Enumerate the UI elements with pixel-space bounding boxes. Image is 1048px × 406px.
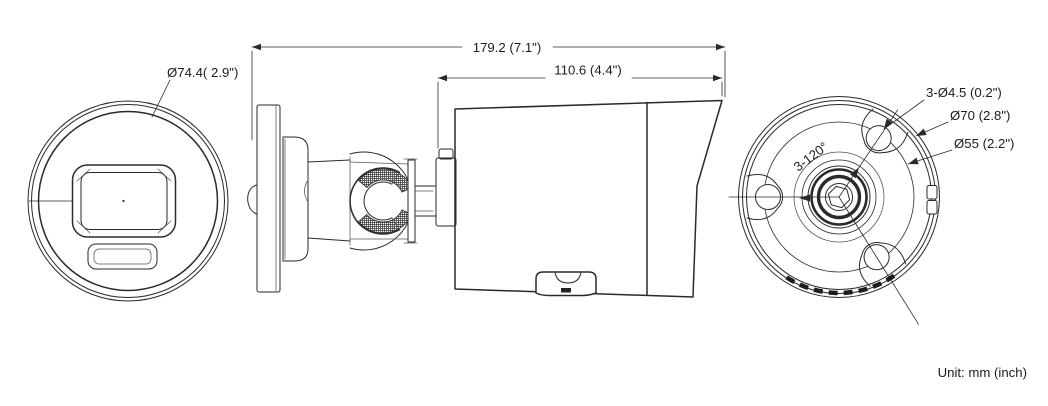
- mount-holes-label: 3-Ø4.5 (0.2"): [926, 85, 1002, 100]
- lens-window: [73, 165, 176, 237]
- camera-body: [436, 101, 722, 298]
- led-window: [88, 244, 157, 269]
- body-outline: [455, 101, 722, 298]
- camera-dimension-sheet: Ø74.4( 2.9"): [0, 0, 1048, 401]
- dimension-total-length: 179.2 (7.1"): [252, 40, 725, 140]
- grip-serrations: [784, 276, 894, 293]
- joint-flange: [408, 160, 415, 242]
- front-diameter-leader: [152, 80, 170, 117]
- rear-view: 3-120° 3-Ø4.5 (0.2") Ø70 (2.8") Ø55 (2.2…: [729, 85, 1014, 324]
- mount-plate-side: [248, 105, 280, 292]
- body-length-label: 110.6 (4.4"): [554, 63, 621, 78]
- lens-center-dot: [122, 200, 124, 202]
- bracket-base: [283, 137, 308, 261]
- dimension-annotations: 179.2 (7.1") 110.6 (4.4"): [252, 40, 725, 148]
- unit-note: Unit: mm (inch): [938, 365, 1027, 380]
- side-view: [248, 101, 722, 298]
- total-length-label: 179.2 (7.1"): [473, 40, 541, 55]
- bottom-cable-clip: [536, 272, 596, 296]
- bolt-circle-label: Ø70 (2.8"): [950, 108, 1010, 123]
- technical-drawing: Ø74.4( 2.9"): [0, 0, 1048, 401]
- base-circle-label: Ø55 (2.2"): [954, 136, 1014, 151]
- front-view: Ø74.4( 2.9"): [28, 65, 238, 301]
- clip-latch: [561, 288, 571, 293]
- front-diameter-label: Ø74.4( 2.9"): [167, 65, 238, 80]
- arm-and-ball-joint: [308, 152, 436, 250]
